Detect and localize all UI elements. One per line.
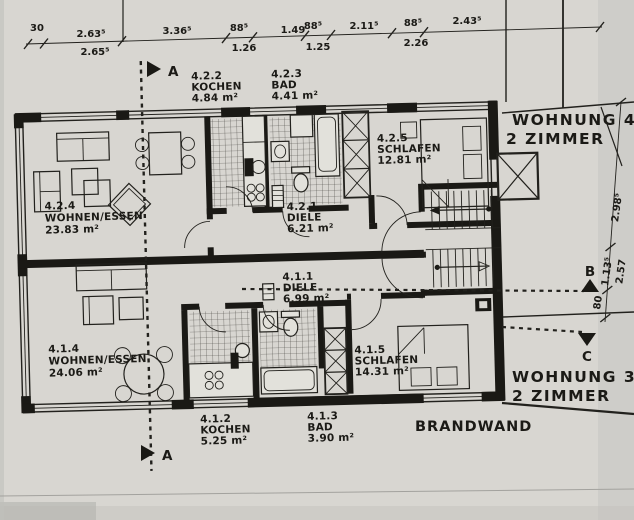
washing-machine bbox=[290, 115, 313, 138]
dim-top-8: 2.43⁵ bbox=[452, 16, 481, 27]
elevator-shaft bbox=[497, 153, 538, 200]
wc-tank bbox=[281, 311, 299, 317]
dim-right-2: 80 bbox=[592, 295, 605, 310]
room-label-415-area: 14.31 m² bbox=[355, 365, 410, 378]
section-marker-b: B bbox=[585, 264, 595, 280]
wc bbox=[294, 174, 308, 192]
floorplan-canvas: 4.2.2 KOCHEN 4.84 m² 4.2.3 BAD 4.41 m² 4… bbox=[0, 0, 634, 520]
bath-sink bbox=[259, 312, 278, 332]
room-label-421-area: 6.21 m² bbox=[287, 222, 334, 235]
room-label-424-area: 23.83 m² bbox=[45, 223, 100, 236]
kitchen-counter bbox=[189, 362, 254, 398]
wc bbox=[284, 318, 298, 336]
apartment-4-size: 2 ZIMMER bbox=[506, 130, 605, 148]
apartment-4-name: WOHNUNG 4 bbox=[512, 111, 634, 129]
dim-top-5: 88⁵ bbox=[304, 21, 322, 32]
room-label-411-area: 6.99 m² bbox=[283, 292, 330, 305]
radiator-hall bbox=[263, 284, 274, 300]
paper-edge-left bbox=[0, 0, 4, 520]
kitchen-top-tiles bbox=[210, 118, 244, 207]
dim-top-7: 88⁵ bbox=[404, 18, 422, 29]
dim-top-0: 30 bbox=[30, 23, 44, 34]
dim-top-6: 2.11⁵ bbox=[349, 21, 378, 32]
apartment-3-name: WOHNUNG 3 bbox=[512, 368, 634, 386]
room-label-413-area: 3.90 m² bbox=[308, 432, 355, 445]
dim-top-3: 88⁵ bbox=[230, 23, 248, 34]
floorplan-scan: 4.2.2 KOCHEN 4.84 m² 4.2.3 BAD 4.41 m² 4… bbox=[0, 0, 634, 520]
wc-tank bbox=[292, 167, 310, 173]
dim-top-1-sub: 2.65⁵ bbox=[80, 47, 109, 58]
radiator-top bbox=[272, 185, 284, 207]
room-label-422-area: 4.84 m² bbox=[192, 92, 239, 105]
room-label-423-area: 4.41 m² bbox=[272, 89, 319, 102]
dim-top-2: 3.36⁵ bbox=[162, 26, 191, 37]
firewall-label: BRANDWAND bbox=[415, 419, 532, 435]
apartment-3-size: 2 ZIMMER bbox=[512, 387, 611, 405]
room-label-425-area: 12.81 m² bbox=[377, 153, 432, 166]
paper-shadow-corner bbox=[0, 502, 96, 520]
section-marker-a-bottom: A bbox=[162, 448, 173, 464]
dim-top-3-sub: 1.26 bbox=[232, 43, 257, 54]
section-marker-c: C bbox=[582, 349, 592, 365]
dim-top-5-sub: 1.25 bbox=[306, 42, 331, 53]
bath-sink bbox=[271, 141, 290, 161]
room-label-414-area: 24.06 m² bbox=[49, 366, 104, 379]
room-label-424-id: 4.2.4 bbox=[44, 200, 75, 213]
room-label-412-area: 5.25 m² bbox=[201, 434, 248, 447]
sink-drainer bbox=[230, 353, 238, 369]
section-marker-a-top: A bbox=[168, 64, 179, 80]
kitchen-top-fixtures bbox=[242, 116, 266, 207]
dim-top-1: 2.63⁵ bbox=[76, 29, 105, 40]
room-label-414-id: 4.1.4 bbox=[48, 343, 79, 356]
dim-top-7-sub: 2.26 bbox=[404, 38, 429, 49]
dim-top-4: 1.49 bbox=[281, 25, 306, 36]
